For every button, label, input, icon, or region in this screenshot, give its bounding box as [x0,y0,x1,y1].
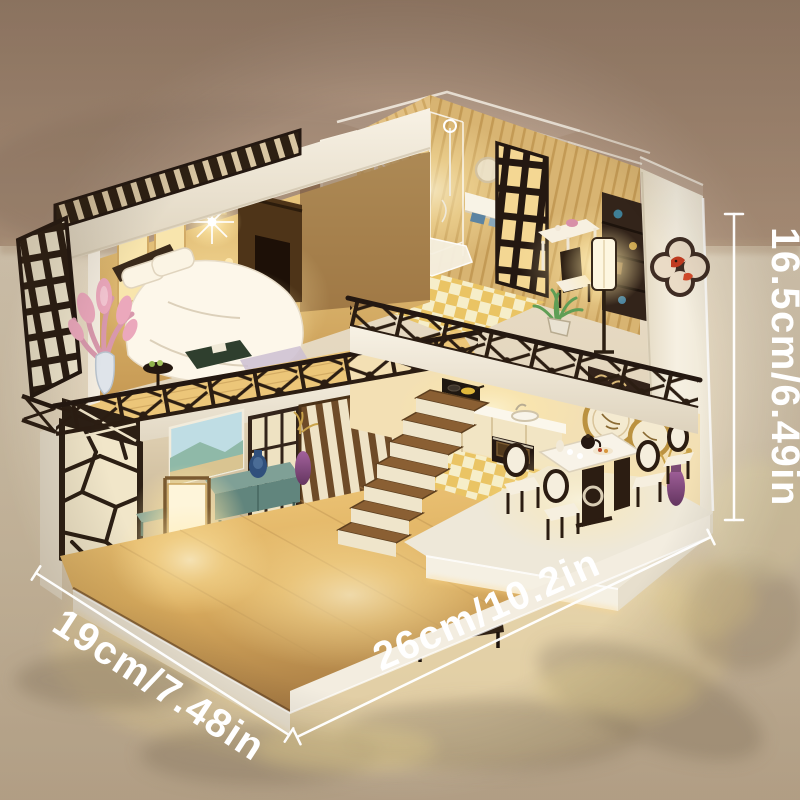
product-photo: 16.5cm/6.49in 19cm/7.48in 26cm/10.2in [0,0,800,800]
dollhouse-scene: 16.5cm/6.49in 19cm/7.48in 26cm/10.2in [0,0,800,800]
dimension-height-label: 16.5cm/6.49in [763,227,800,507]
